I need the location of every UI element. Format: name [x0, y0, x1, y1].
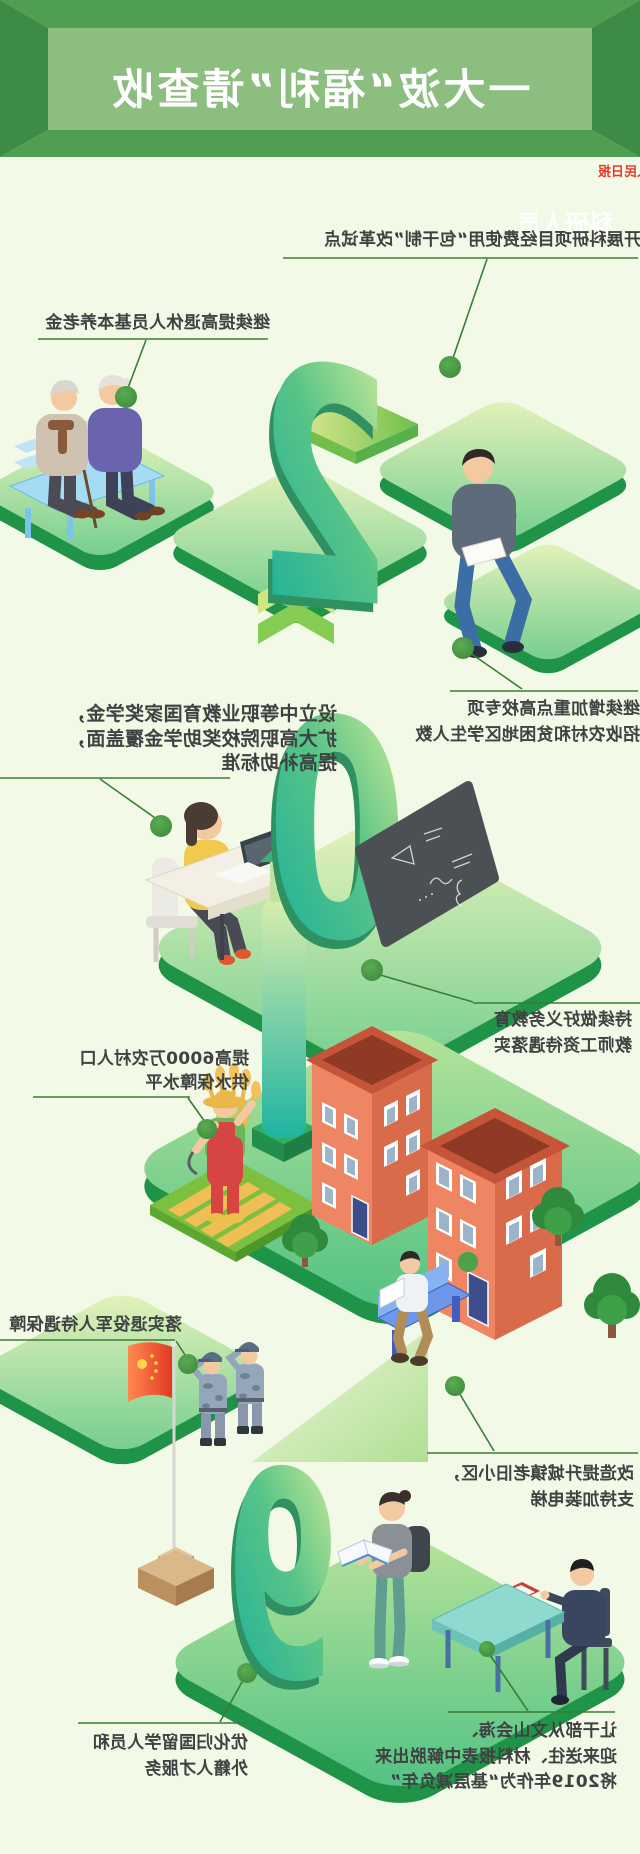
callout-pension: 继续提高退休人员基本养老金 — [38, 310, 270, 336]
callout-burden: 让干部从文山会海、 迎来送往、材料报表中解脱出来 将2019年作为“基层减负年” — [377, 1719, 617, 1796]
page-title: 一大波“福利”请查收 — [0, 56, 640, 117]
callout-veterans: 落实退役军人待遇保障 — [8, 1312, 182, 1338]
callout-overseas: 优化归国留学人员和 外籍人才服务 — [88, 1730, 248, 1783]
callout-renovation: 改造提升城镇老旧小区， 支持加装电梯 — [395, 1461, 634, 1514]
callout-students: 继续增加重点高校专项 招收农村和贫困地区学生人数 — [405, 696, 640, 749]
callout-vocational: 设立中等职业教育国家奖学金， 扩大高职院校奖助学金覆盖面， 提高补助标准 — [15, 702, 337, 776]
credit-label: 人民日报 — [598, 161, 640, 180]
callout-teachers: 持续做好义务教育 教师工资待遇落实 — [475, 1007, 632, 1060]
callout-research: 开展科研项目经费使用“包干制”改革试点 — [283, 227, 640, 253]
text-layer: 一大波“福利”请查收 人民日报 科研人员 开展科研项目经费使用“包干制”改革试点… — [0, 0, 640, 1854]
infographic-canvas: 22 00 99 一大波“福利”请查收 人民日报 科研人员 开展科研项目经费使用… — [0, 0, 640, 1854]
callout-water: 提高6000万农村人口 供水保障水平 — [28, 1048, 249, 1096]
